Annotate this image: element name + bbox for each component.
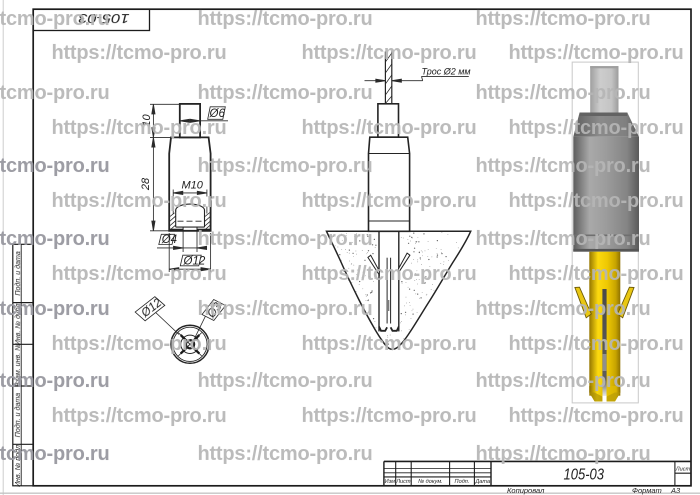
svg-text:https://tcmo-pro.ru: https://tcmo-pro.ru xyxy=(475,370,650,392)
svg-text:https://tcmo-pro.ru: https://tcmo-pro.ru xyxy=(508,190,683,212)
svg-text:Лист: Лист xyxy=(395,479,411,485)
svg-text:https://tcmo-pro.ru: https://tcmo-pro.ru xyxy=(475,82,650,104)
svg-text:https://tcmo-pro.ru: https://tcmo-pro.ru xyxy=(51,405,226,427)
svg-text:Подп. и дата: Подп. и дата xyxy=(14,251,22,295)
svg-text:https://tcmo-pro.ru: https://tcmo-pro.ru xyxy=(475,228,650,250)
svg-text:https://tcmo-pro.ru: https://tcmo-pro.ru xyxy=(197,8,372,30)
svg-text:https://tcmo-pro.ru: https://tcmo-pro.ru xyxy=(475,155,650,177)
svg-text:https://tcmo-pro.ru: https://tcmo-pro.ru xyxy=(51,263,226,285)
svg-text:https://tcmo-pro.ru: https://tcmo-pro.ru xyxy=(51,42,226,64)
svg-text:https://tcmo-pro.ru: https://tcmo-pro.ru xyxy=(197,298,372,320)
svg-text:https://tcmo-pro.ru: https://tcmo-pro.ru xyxy=(475,443,650,465)
svg-text:Подп. и дата: Подп. и дата xyxy=(14,393,22,437)
svg-text:https://tcmo-pro.ru: https://tcmo-pro.ru xyxy=(51,117,226,139)
svg-text:Копировал: Копировал xyxy=(507,486,545,495)
svg-text:105-03: 105-03 xyxy=(563,466,604,483)
svg-text:Трос Ø2 мм: Трос Ø2 мм xyxy=(421,67,470,77)
svg-text:https://tcmo-pro.ru: https://tcmo-pro.ru xyxy=(475,298,650,320)
svg-text:https://tcmo-pro.ru: https://tcmo-pro.ru xyxy=(301,263,476,285)
svg-text:https://tcmo-pro.ru: https://tcmo-pro.ru xyxy=(51,333,226,355)
svg-text:https://tcmo-pro.ru: https://tcmo-pro.ru xyxy=(301,190,476,212)
svg-text:https://tcmo-pro.ru: https://tcmo-pro.ru xyxy=(508,263,683,285)
svg-text:https://tcmo-pro.ru: https://tcmo-pro.ru xyxy=(197,228,372,250)
svg-text:https://tcmo-pro.ru: https://tcmo-pro.ru xyxy=(475,8,650,30)
svg-text:https://tcmo-pro.ru: https://tcmo-pro.ru xyxy=(0,155,110,177)
svg-text:Изм: Изм xyxy=(385,479,396,485)
svg-text:№ докум.: № докум. xyxy=(418,479,443,485)
svg-text:https://tcmo-pro.ru: https://tcmo-pro.ru xyxy=(0,228,110,250)
svg-text:https://tcmo-pro.ru: https://tcmo-pro.ru xyxy=(301,333,476,355)
svg-text:Формат: Формат xyxy=(632,486,662,495)
svg-text:https://tcmo-pro.ru: https://tcmo-pro.ru xyxy=(301,405,476,427)
svg-text:Подп.: Подп. xyxy=(455,479,470,485)
svg-text:https://tcmo-pro.ru: https://tcmo-pro.ru xyxy=(0,82,110,104)
svg-text:28: 28 xyxy=(140,177,152,191)
svg-text:https://tcmo-pro.ru: https://tcmo-pro.ru xyxy=(508,405,683,427)
svg-text:https://tcmo-pro.ru: https://tcmo-pro.ru xyxy=(51,190,226,212)
svg-text:Дата: Дата xyxy=(474,479,490,485)
svg-text:https://tcmo-pro.ru: https://tcmo-pro.ru xyxy=(301,42,476,64)
svg-text:https://tcmo-pro.ru: https://tcmo-pro.ru xyxy=(508,42,683,64)
svg-text:https://tcmo-pro.ru: https://tcmo-pro.ru xyxy=(508,117,683,139)
svg-text:Лист: Лист xyxy=(675,467,691,473)
svg-text:https://tcmo-pro.ru: https://tcmo-pro.ru xyxy=(197,370,372,392)
svg-text:https://tcmo-pro.ru: https://tcmo-pro.ru xyxy=(0,443,110,465)
svg-text:https://tcmo-pro.ru: https://tcmo-pro.ru xyxy=(508,333,683,355)
svg-text:https://tcmo-pro.ru: https://tcmo-pro.ru xyxy=(0,8,110,30)
svg-text:https://tcmo-pro.ru: https://tcmo-pro.ru xyxy=(301,117,476,139)
svg-text:https://tcmo-pro.ru: https://tcmo-pro.ru xyxy=(197,82,372,104)
svg-text:https://tcmo-pro.ru: https://tcmo-pro.ru xyxy=(197,443,372,465)
svg-text:https://tcmo-pro.ru: https://tcmo-pro.ru xyxy=(0,298,110,320)
svg-text:https://tcmo-pro.ru: https://tcmo-pro.ru xyxy=(0,370,110,392)
svg-text:https://tcmo-pro.ru: https://tcmo-pro.ru xyxy=(197,155,372,177)
svg-text:А3: А3 xyxy=(670,486,681,495)
